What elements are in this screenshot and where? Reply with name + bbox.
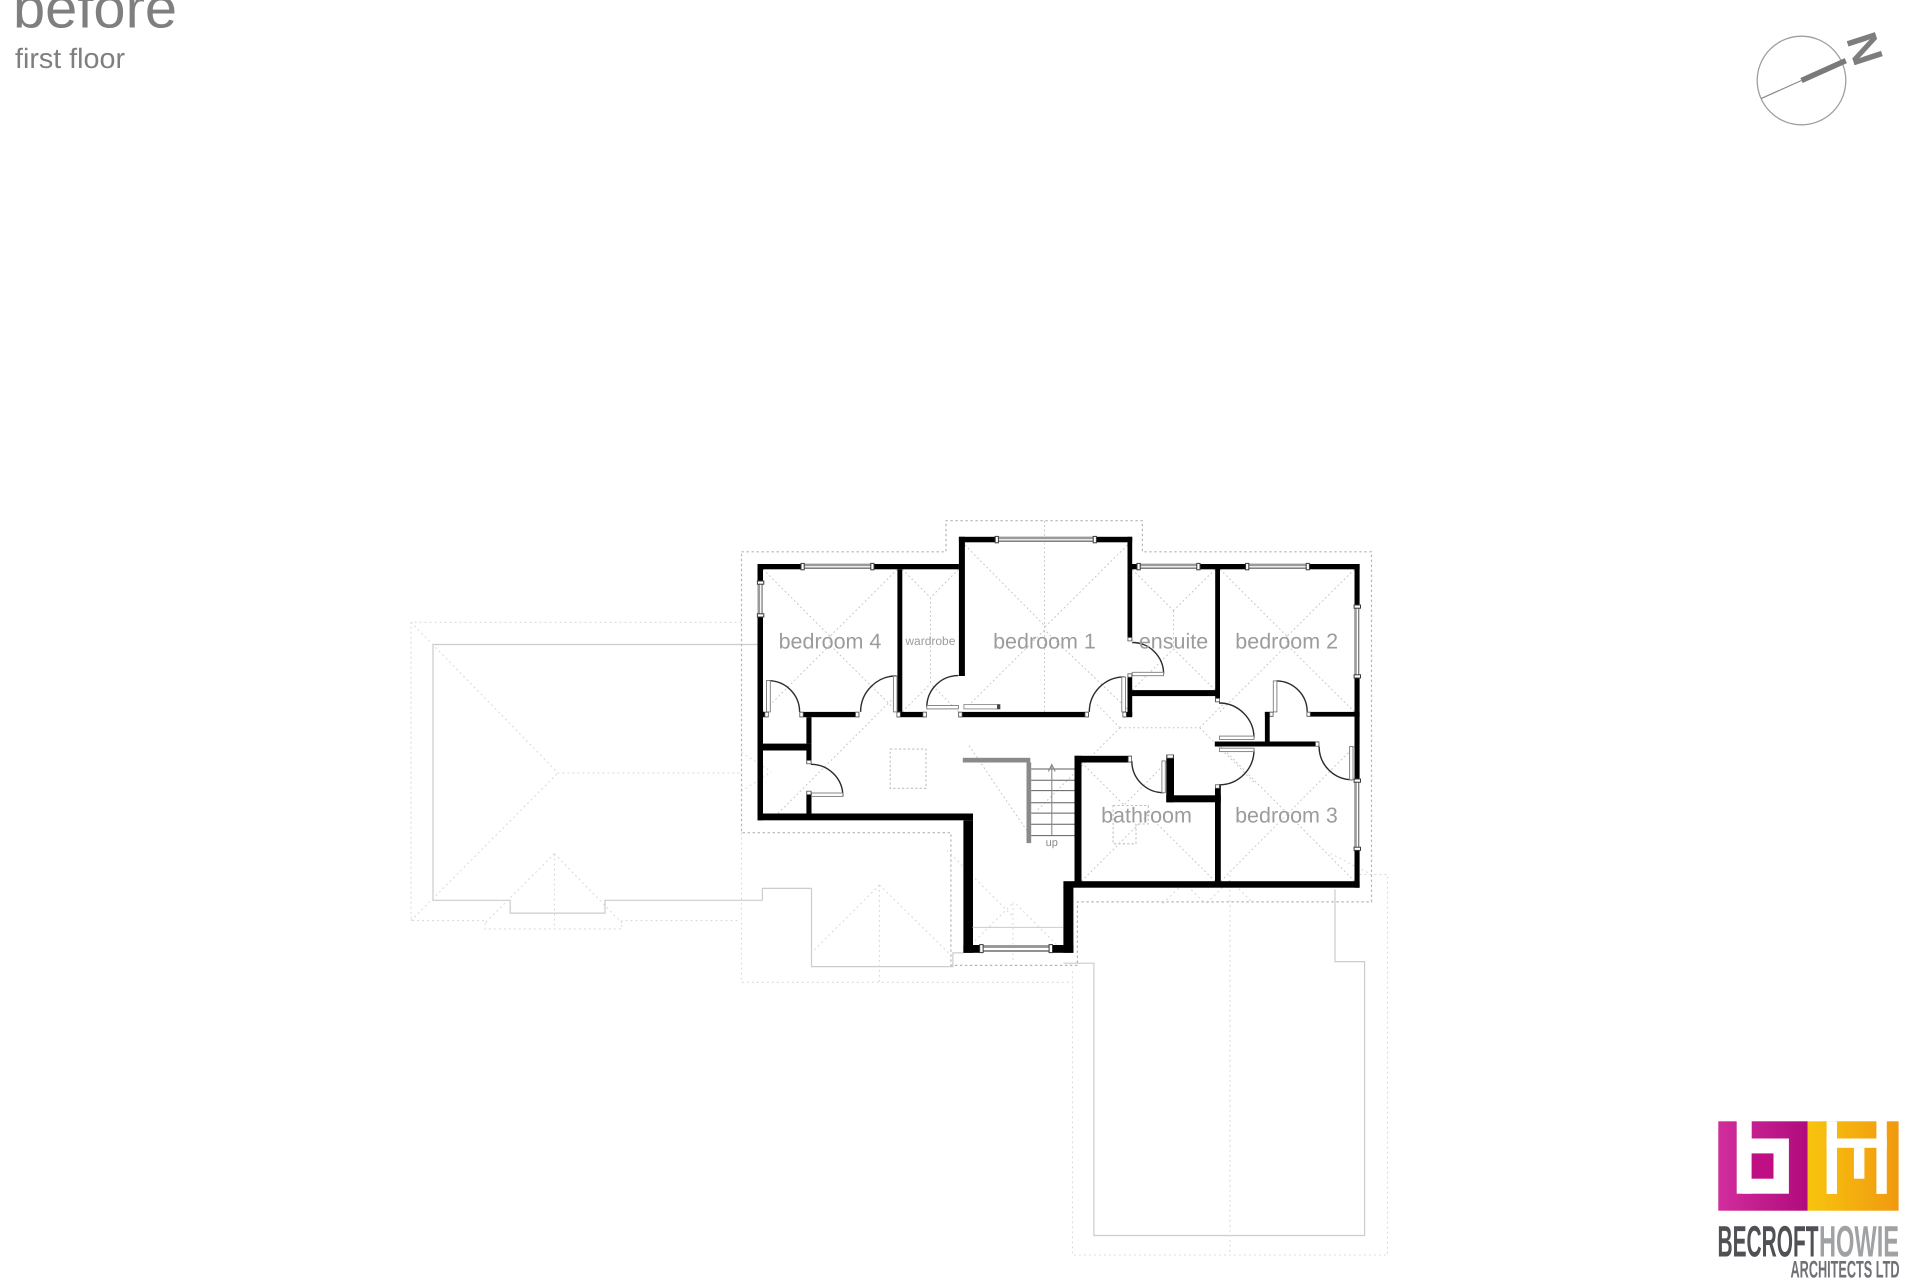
svg-text:ensuite: ensuite <box>1139 630 1208 654</box>
svg-text:ARCHITECTS LTD: ARCHITECTS LTD <box>1791 1257 1900 1280</box>
svg-text:wardrobe: wardrobe <box>904 634 955 648</box>
svg-text:up: up <box>1046 837 1058 849</box>
svg-text:before: before <box>13 0 177 41</box>
svg-text:N: N <box>1836 27 1891 71</box>
svg-text:bedroom 3: bedroom 3 <box>1235 804 1338 828</box>
svg-text:bathroom: bathroom <box>1101 804 1192 828</box>
svg-text:bedroom 1: bedroom 1 <box>993 630 1096 654</box>
svg-text:bedroom 2: bedroom 2 <box>1235 630 1338 654</box>
svg-text:first floor: first floor <box>15 43 125 74</box>
svg-text:bedroom 4: bedroom 4 <box>779 630 882 654</box>
